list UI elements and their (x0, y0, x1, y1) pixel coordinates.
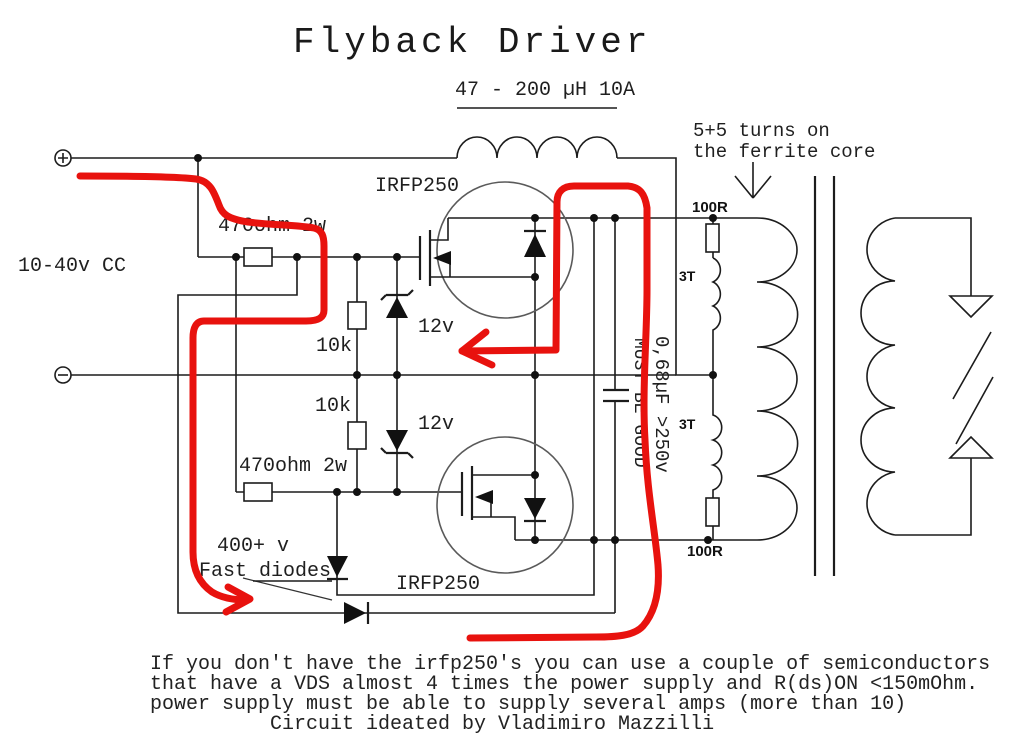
turns-note-line1: 5+5 turns on (693, 120, 830, 142)
footer-note: If you don't have the irfp250's you can … (150, 653, 990, 736)
primary-network (706, 218, 798, 540)
mosfet-top-label: IRFP250 (375, 175, 459, 198)
zener-top-label: 12v (418, 316, 454, 339)
mosfet-bottom-arrow-icon (475, 490, 493, 504)
mosfet-top-circle (437, 182, 573, 318)
secondary-winding (861, 218, 895, 535)
pulldown-resistor-top-body (348, 302, 366, 329)
pulldown-bottom-label: 10k (315, 395, 351, 418)
page-title: Flyback Driver (293, 22, 651, 63)
cap-value-label: 0,68µF >250v (650, 336, 672, 473)
gate-resistor-top-body (244, 248, 272, 266)
red-path-right (462, 186, 658, 638)
mosfet-bottom-body-diode-icon (524, 498, 546, 519)
flyback-driver-schematic: Flyback Driver (0, 0, 1024, 754)
zener-bottom-label: 12v (418, 413, 454, 436)
footer-line4: Circuit ideated by Vladimiro Mazzilli (270, 713, 714, 736)
spark-gap-icon (950, 296, 993, 458)
damp-resistor-top-body (706, 224, 719, 252)
supply-label: 10-40v CC (18, 255, 126, 278)
damp-resistor-bottom-body (706, 498, 719, 526)
mosfet-top-symbol (420, 182, 573, 318)
zener-bottom-icon (381, 430, 413, 458)
coil-bottom-label: 3T (679, 416, 696, 432)
red-marker-annotations (80, 176, 658, 638)
mosfet-bottom-symbol (437, 437, 573, 573)
gate-resistor-bottom-body (244, 483, 272, 501)
diode-note-line2: Fast diodes (199, 560, 331, 583)
mosfet-bottom-label: IRFP250 (396, 573, 480, 596)
ferrite-core-icon (815, 176, 834, 576)
zener-top-icon (381, 290, 413, 318)
gate-resistor-bottom-label: 470ohm 2w (239, 455, 347, 478)
coil-top-label: 3T (679, 268, 696, 284)
pulldown-resistor-bottom-body (348, 422, 366, 449)
diode-note-line1: 400+ v (217, 535, 289, 558)
mosfet-top-body-diode-icon (524, 234, 546, 257)
turns-pointer-arrow-icon (735, 162, 771, 198)
damp-resistor-bottom-label: 100R (687, 543, 723, 560)
damp-resistor-top-label: 100R (692, 199, 728, 216)
choke-label: 47 - 200 µH 10A (455, 79, 635, 102)
mosfet-top-arrow-icon (433, 251, 451, 265)
fast-diode-horizontal-icon (344, 602, 368, 624)
secondary-network (861, 218, 993, 535)
choke-inductor (457, 137, 617, 158)
pulldown-top-label: 10k (316, 335, 352, 358)
turns-note-line2: the ferrite core (693, 141, 875, 163)
mosfet-bottom-circle (437, 437, 573, 573)
primary-winding (757, 218, 798, 540)
tank-capacitor (603, 390, 629, 401)
